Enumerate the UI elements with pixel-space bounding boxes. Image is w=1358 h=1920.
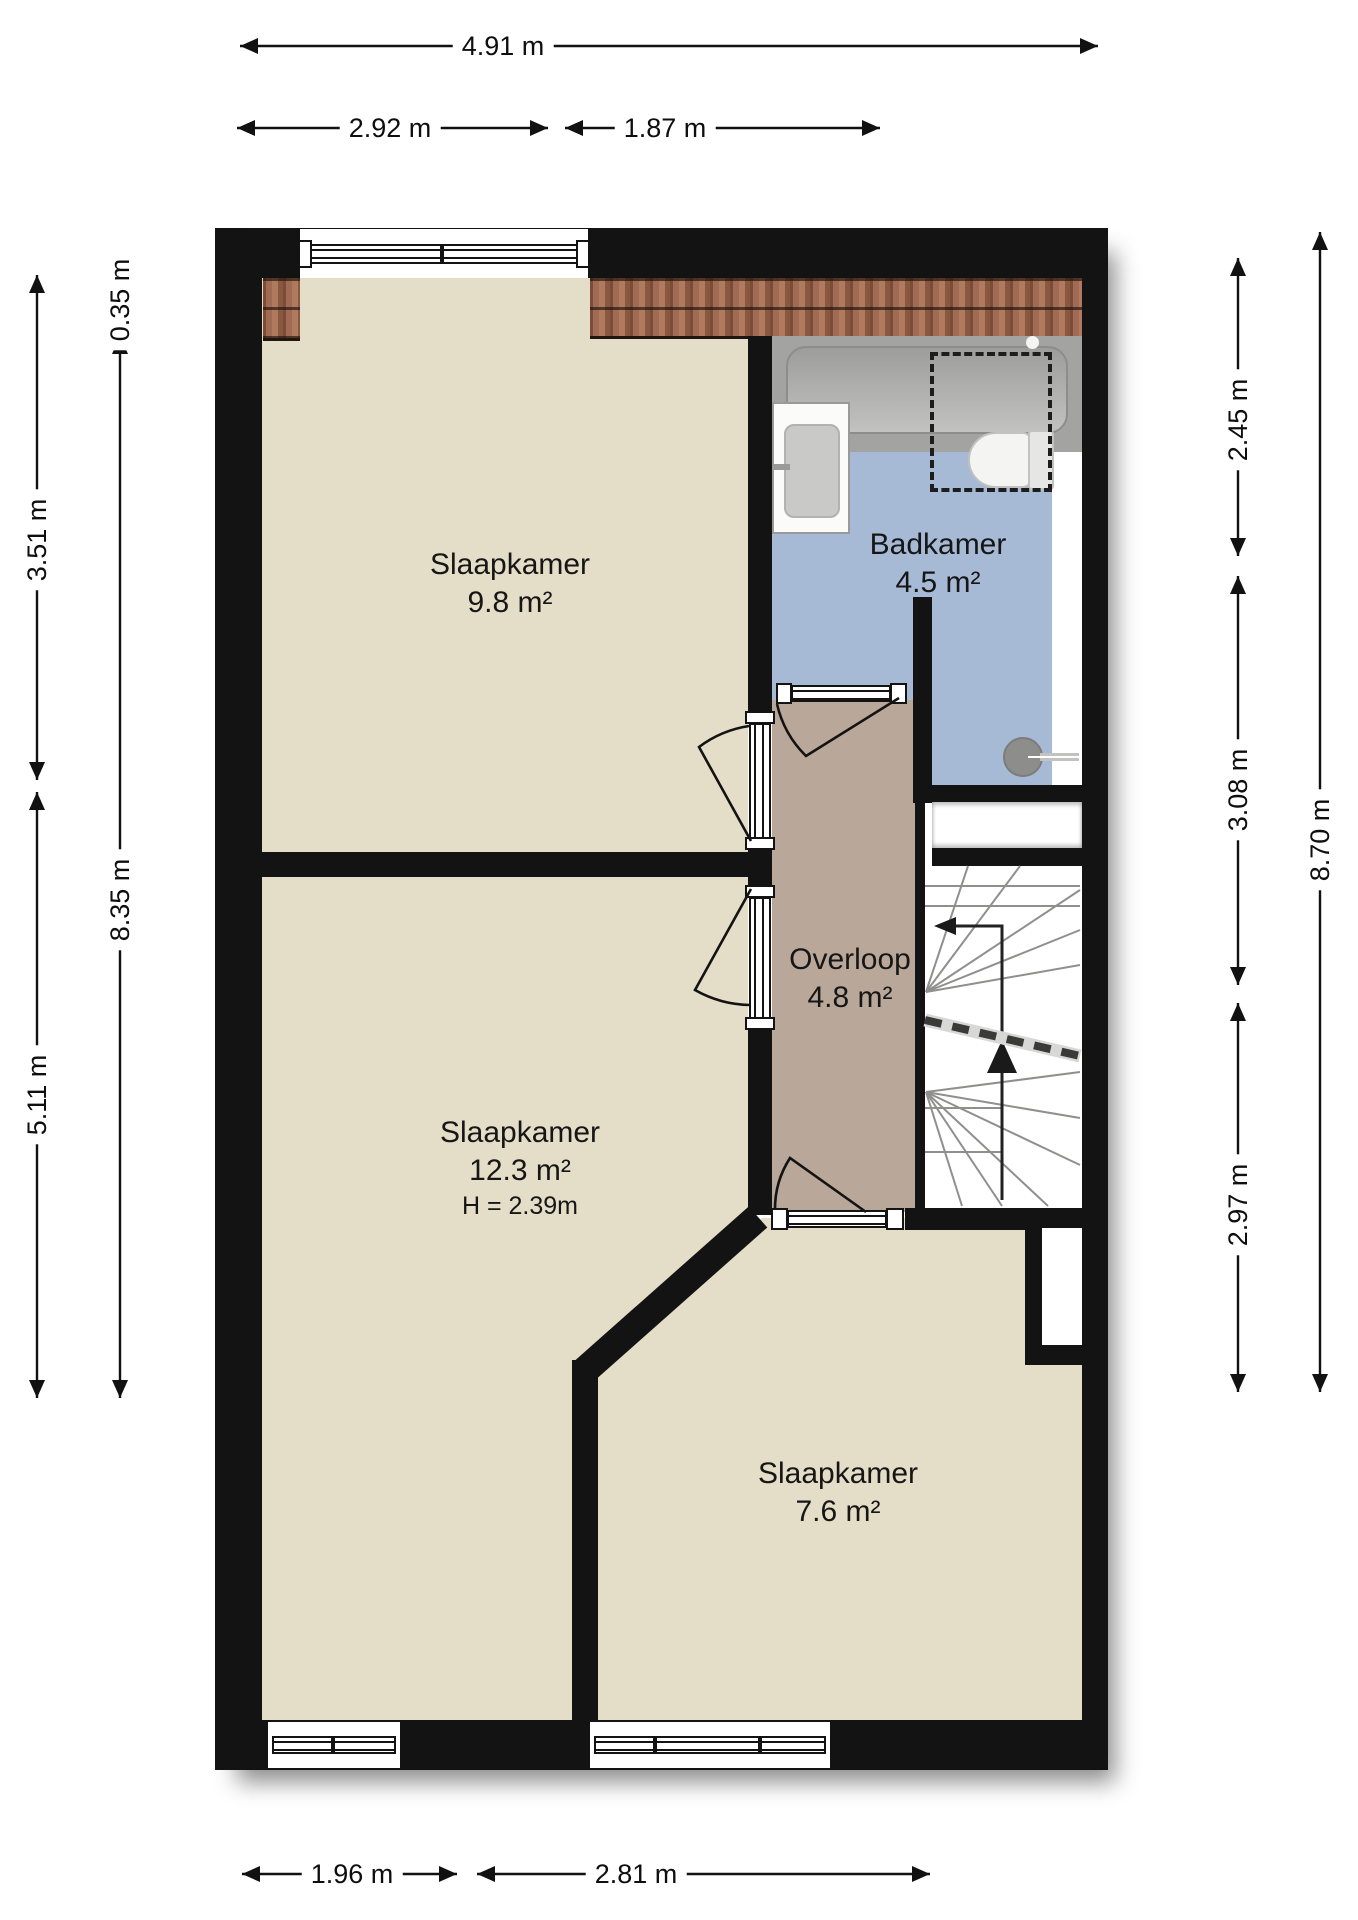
wall-niche-bottom xyxy=(1025,1345,1082,1365)
label-badkamer: Badkamer 4.5 m² xyxy=(870,526,1007,602)
wall-bathroom-stub xyxy=(913,597,932,803)
dim-left-roof: 0.35 m xyxy=(105,250,135,351)
window-bottom-left-mullion xyxy=(331,1736,335,1754)
window-top-mullion xyxy=(440,244,444,264)
dim-left-upper: 3.51 m xyxy=(22,490,52,591)
wall-spine-lower xyxy=(748,1030,772,1215)
roof-tiles-left xyxy=(263,278,300,341)
room-name: Badkamer xyxy=(870,526,1007,564)
door-slaapkamer-1-post-top xyxy=(745,711,775,724)
dim-bottom-right: 2.81 m xyxy=(586,1859,687,1889)
window-bottom-right-mullion-1 xyxy=(653,1736,657,1754)
window-bottom-right-frame xyxy=(594,1736,826,1754)
label-overloop: Overloop 4.8 m² xyxy=(789,941,911,1017)
door-badkamer-post-left xyxy=(776,683,792,704)
dim-top-overall: 4.91 m xyxy=(453,31,554,61)
wall-spine-upper xyxy=(748,336,772,715)
window-top-post-right xyxy=(576,240,590,268)
room-name: Slaapkamer xyxy=(440,1114,600,1152)
dim-right-lower: 2.97 m xyxy=(1223,1155,1253,1256)
room-area: 4.8 m² xyxy=(789,979,911,1017)
dim-bottom-left: 1.96 m xyxy=(302,1859,403,1889)
wall-bedroom-divider xyxy=(262,852,748,877)
dim-top-left: 2.92 m xyxy=(340,113,441,143)
dim-left-inner: 8.35 m xyxy=(105,850,135,951)
shower-drain xyxy=(1003,737,1043,777)
room-area: 12.3 m² xyxy=(440,1152,600,1190)
stair-landing-void xyxy=(932,802,1082,848)
wall-niche-left xyxy=(1025,1228,1042,1345)
room-name: Slaapkamer xyxy=(758,1455,918,1493)
room-height: H = 2.39m xyxy=(440,1190,600,1222)
wall-stairwell-lower xyxy=(932,848,1082,866)
window-top-frame xyxy=(306,244,582,264)
window-bottom-right-mullion-2 xyxy=(758,1736,762,1754)
washbasin xyxy=(772,402,850,534)
door-slaapkamer-1-frame xyxy=(749,723,771,839)
dim-right-middle: 3.08 m xyxy=(1223,740,1253,841)
label-slaapkamer-3: Slaapkamer 7.6 m² xyxy=(758,1455,918,1531)
door-slaapkamer-3-threshold xyxy=(787,1210,887,1228)
door-slaapkamer-3-post-left xyxy=(771,1208,788,1230)
roof-tiles-right xyxy=(590,278,1082,339)
door-slaapkamer-2-post-top xyxy=(745,885,775,898)
door-badkamer-post-right xyxy=(890,683,907,704)
wall-stairwell-upper xyxy=(932,785,1082,802)
wall-right xyxy=(1082,228,1108,1770)
room-area: 4.5 m² xyxy=(870,564,1007,602)
window-top-post-left xyxy=(298,240,312,268)
wall-stairs-left xyxy=(915,803,925,1208)
room-area: 7.6 m² xyxy=(758,1493,918,1531)
door-slaapkamer-2-frame xyxy=(749,897,771,1019)
label-slaapkamer-2: Slaapkamer 12.3 m² H = 2.39m xyxy=(440,1114,600,1222)
dim-right-upper: 2.45 m xyxy=(1223,370,1253,471)
wall-bedroom23-vertical xyxy=(572,1360,598,1720)
room-name: Overloop xyxy=(789,941,911,979)
door-slaapkamer-1-post-bottom xyxy=(745,837,775,850)
label-slaapkamer-1: Slaapkamer 9.8 m² xyxy=(430,546,590,622)
room-area: 9.8 m² xyxy=(430,584,590,622)
wall-spine-middle xyxy=(748,845,772,885)
dim-top-right: 1.87 m xyxy=(615,113,716,143)
dim-right-overall: 8.70 m xyxy=(1305,790,1335,891)
wall-left xyxy=(215,228,262,1770)
bathtub-faucet xyxy=(1026,336,1039,349)
floorplan-canvas: 4.91 m 2.92 m 1.87 m 0.35 m 3.51 m 8.35 … xyxy=(0,0,1358,1920)
washbasin-bowl xyxy=(784,424,840,518)
door-slaapkamer-3-post-right xyxy=(886,1208,904,1230)
washbasin-faucet xyxy=(774,464,790,470)
sloped-ceiling-outline xyxy=(930,352,1052,492)
room-name: Slaapkamer xyxy=(430,546,590,584)
stairs-area xyxy=(925,866,1082,1208)
door-badkamer-threshold xyxy=(791,685,891,702)
door-slaapkamer-2-post-bottom xyxy=(745,1017,775,1030)
dim-left-lower: 5.11 m xyxy=(22,1046,52,1145)
niche-void xyxy=(1042,1228,1082,1345)
wall-stairs-bottom xyxy=(905,1208,1082,1230)
